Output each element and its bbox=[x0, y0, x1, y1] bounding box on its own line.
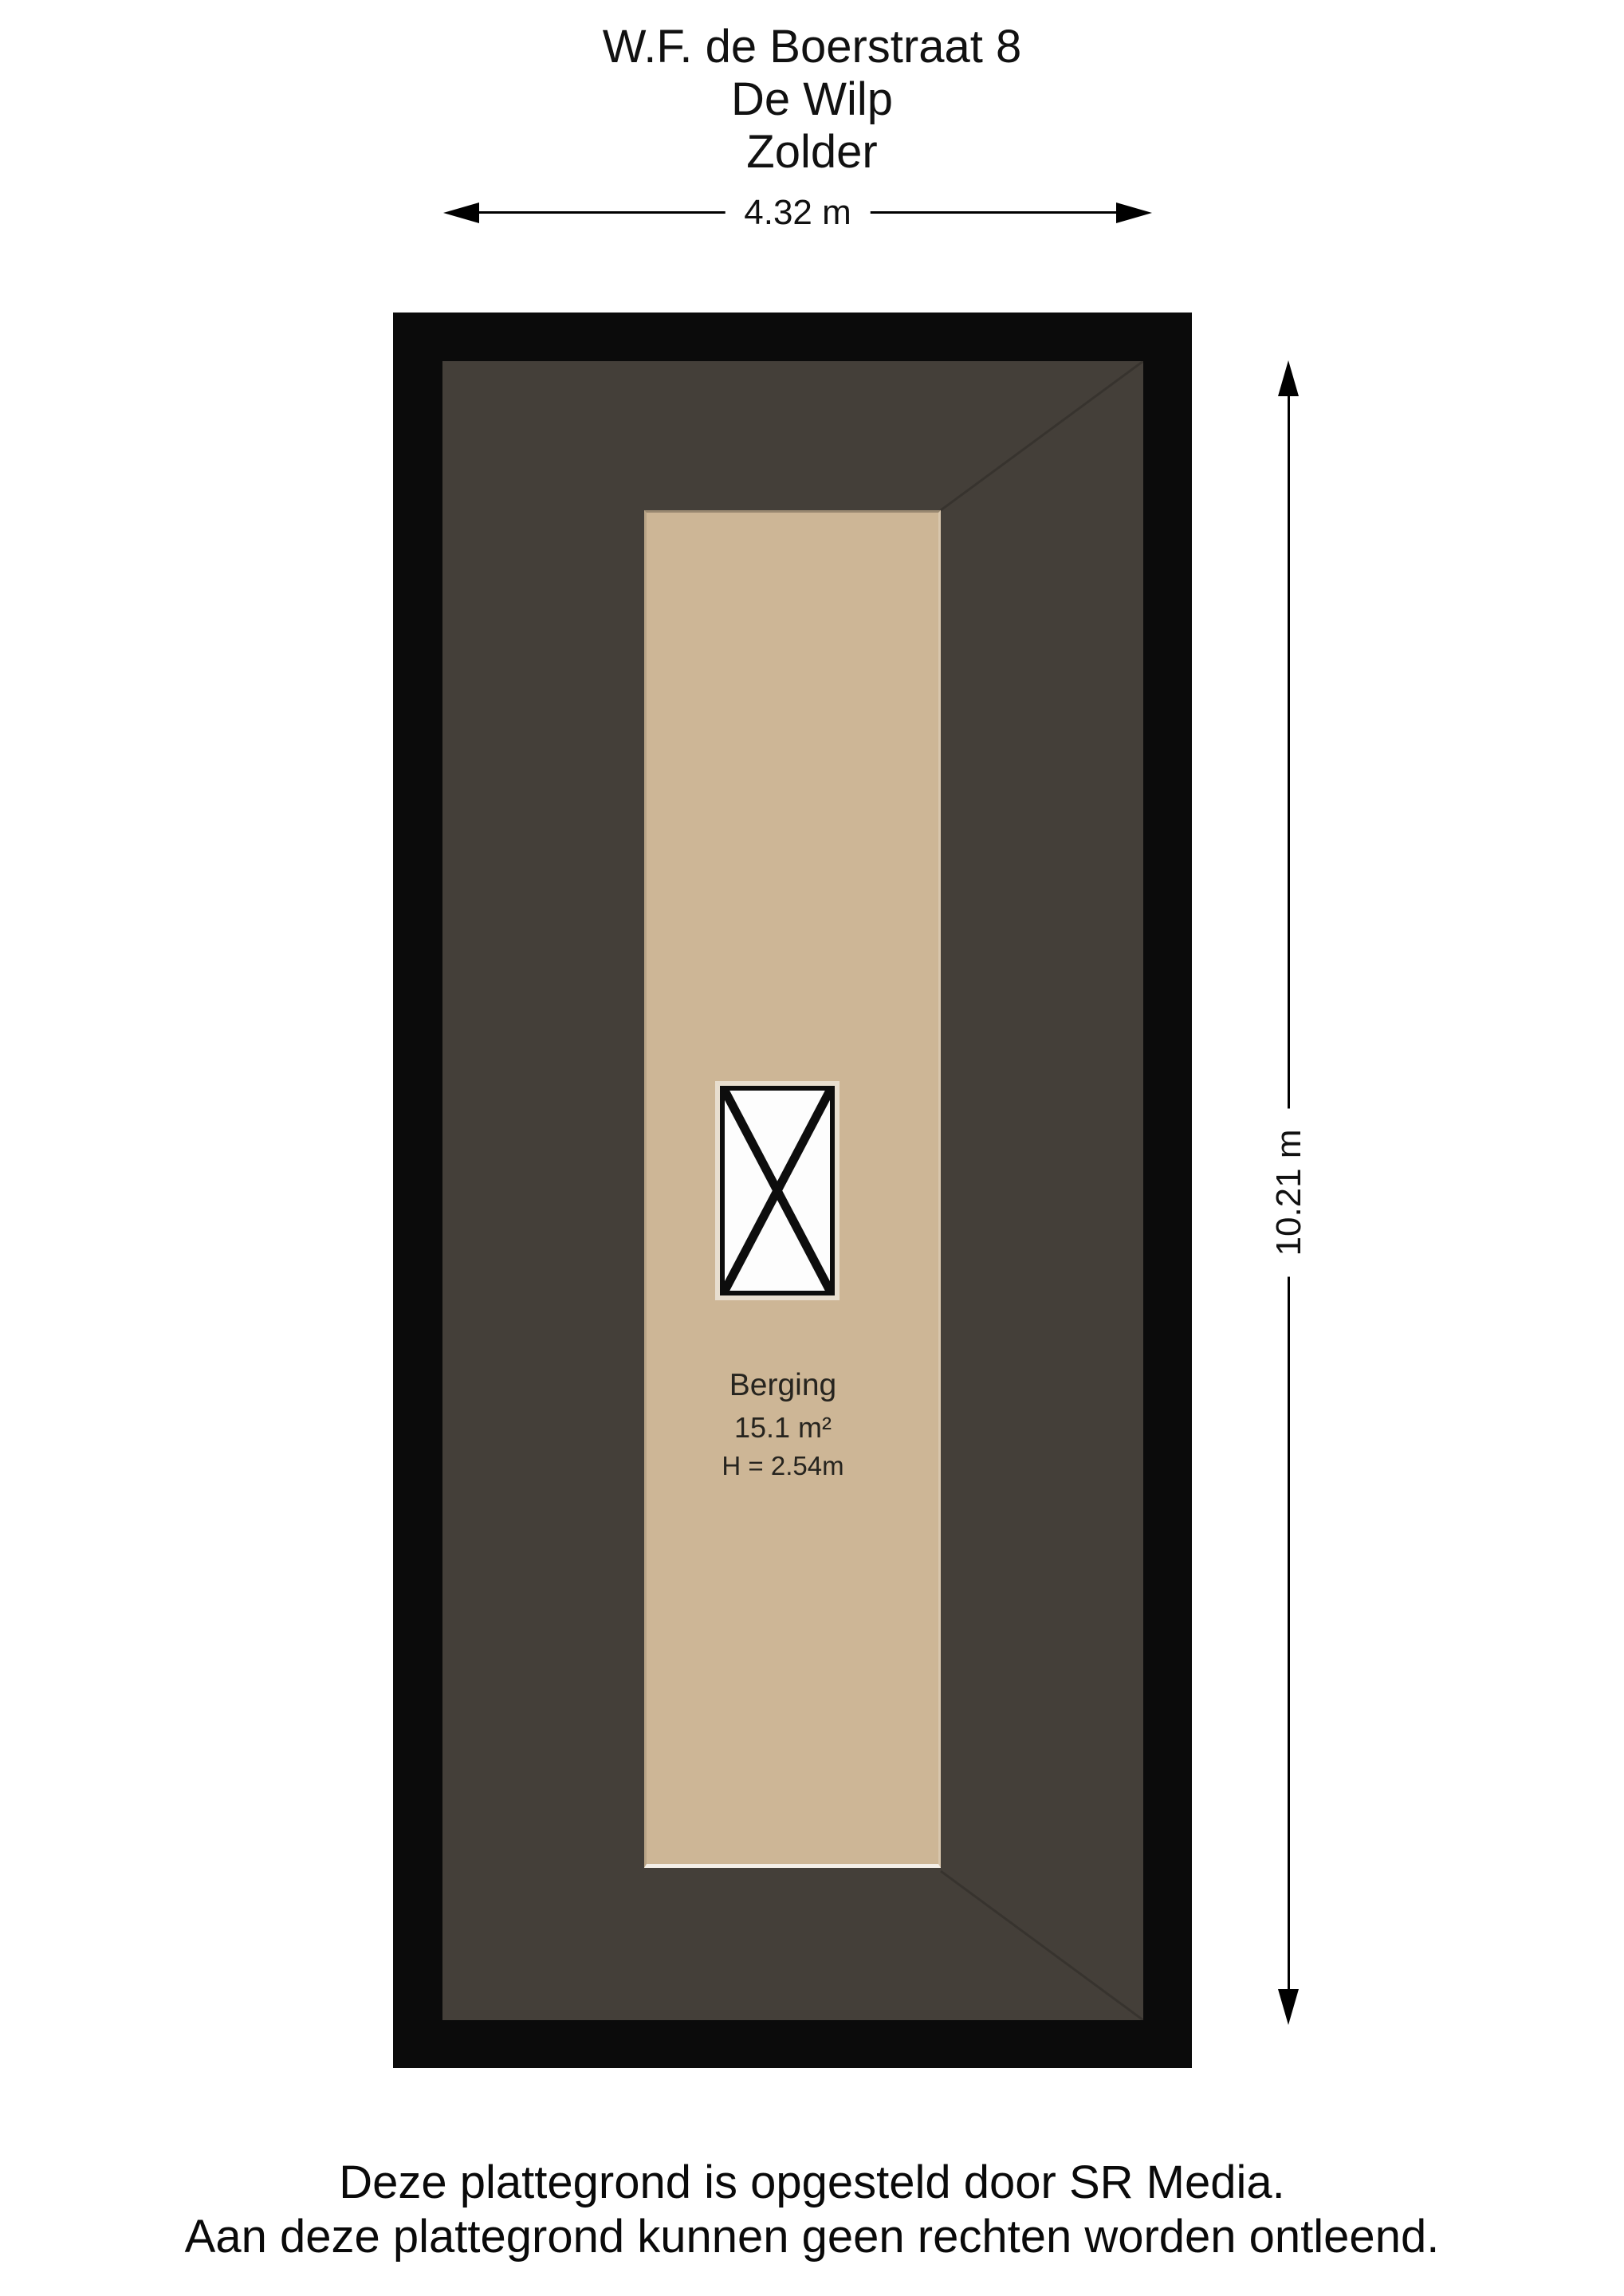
outer-walls: Berging 15.1 m² H = 2.54m bbox=[393, 313, 1192, 2068]
disclaimer-line1: Deze plattegrond is opgesteld door SR Me… bbox=[0, 2156, 1624, 2210]
height-dimension: 10.21 m bbox=[1269, 360, 1309, 2025]
disclaimer-line2: Aan deze plattegrond kunnen geen rechten… bbox=[0, 2210, 1624, 2264]
attic-floor: Berging 15.1 m² H = 2.54m bbox=[442, 361, 1143, 2020]
width-dimension-label: 4.32 m bbox=[725, 192, 871, 234]
height-dimension-label: 10.21 m bbox=[1269, 1109, 1309, 1277]
berging-room: Berging 15.1 m² H = 2.54m bbox=[644, 510, 941, 1868]
room-label: Berging 15.1 m² H = 2.54m bbox=[635, 1365, 931, 1484]
plan-title: W.F. de Boerstraat 8 De Wilp Zolder bbox=[0, 21, 1624, 179]
title-address: W.F. de Boerstraat 8 bbox=[0, 21, 1624, 73]
room-ceiling-height: H = 2.54m bbox=[635, 1449, 931, 1484]
disclaimer: Deze plattegrond is opgesteld door SR Me… bbox=[0, 2156, 1624, 2264]
title-floor: Zolder bbox=[0, 126, 1624, 179]
room-area: 15.1 m² bbox=[635, 1406, 931, 1449]
staircase-icon bbox=[720, 1086, 835, 1295]
floorplan-page: W.F. de Boerstraat 8 De Wilp Zolder 4.32… bbox=[0, 0, 1624, 2296]
arrow-right-icon bbox=[1116, 202, 1152, 223]
arrow-down-icon bbox=[1278, 1989, 1299, 2025]
room-name: Berging bbox=[635, 1365, 931, 1406]
title-city: De Wilp bbox=[0, 73, 1624, 126]
width-dimension: 4.32 m bbox=[443, 192, 1152, 234]
stairs-cross-icon bbox=[725, 1091, 830, 1291]
